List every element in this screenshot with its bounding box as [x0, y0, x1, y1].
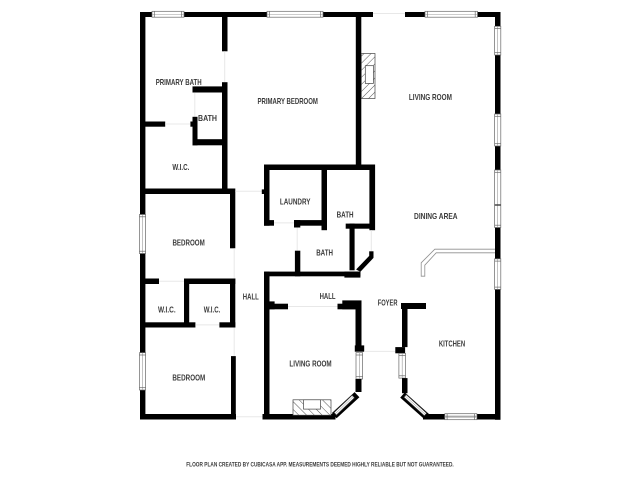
svg-text:BEDROOM: BEDROOM — [172, 372, 205, 382]
svg-text:LIVING ROOM: LIVING ROOM — [289, 359, 331, 369]
svg-text:LAUNDRY: LAUNDRY — [280, 197, 311, 207]
svg-text:DINING AREA: DINING AREA — [414, 211, 458, 221]
svg-text:W.I.C.: W.I.C. — [172, 162, 189, 172]
svg-text:PRIMARY BATH: PRIMARY BATH — [156, 77, 202, 87]
svg-text:LIVING ROOM: LIVING ROOM — [409, 92, 452, 102]
svg-text:W.I.C.: W.I.C. — [204, 305, 221, 315]
svg-text:FOYER: FOYER — [378, 298, 398, 308]
svg-text:HALL: HALL — [243, 291, 259, 301]
svg-text:HALL: HALL — [320, 291, 336, 301]
svg-text:KITCHEN: KITCHEN — [439, 338, 465, 348]
svg-text:PRIMARY BEDROOM: PRIMARY BEDROOM — [258, 96, 318, 106]
svg-text:BATH: BATH — [316, 248, 333, 258]
svg-text:BEDROOM: BEDROOM — [172, 238, 204, 248]
svg-text:BATH: BATH — [198, 113, 217, 123]
svg-text:FLOOR PLAN CREATED BY CUBICASA: FLOOR PLAN CREATED BY CUBICASA APP. MEAS… — [186, 461, 454, 468]
svg-text:W.I.C.: W.I.C. — [158, 305, 176, 315]
svg-text:BATH: BATH — [337, 210, 354, 220]
